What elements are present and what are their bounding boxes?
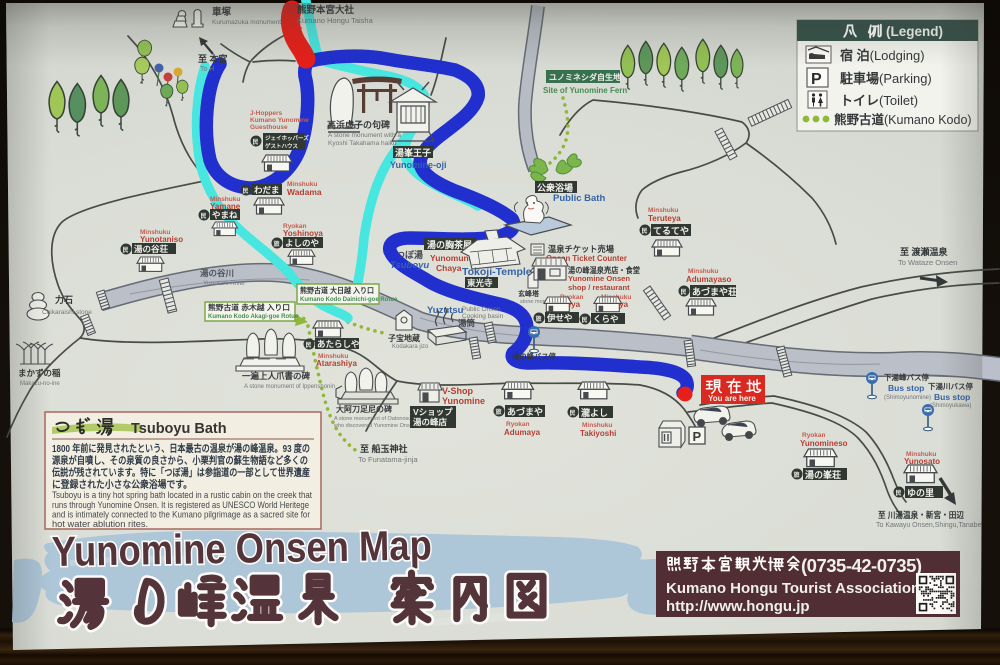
svg-text:旅: 旅 [535, 315, 542, 323]
svg-text:Yoshinoya: Yoshinoya [283, 229, 323, 238]
svg-text:Yunomineso: Yunomineso [800, 439, 848, 448]
svg-text:あたらしや: あたらしや [317, 339, 359, 349]
svg-text:Wadama: Wadama [287, 187, 322, 197]
svg-text:民: 民 [123, 246, 129, 254]
svg-text:力石: 力石 [55, 294, 73, 305]
svg-text:Yunotaniso: Yunotaniso [140, 235, 183, 244]
svg-text:P: P [693, 429, 702, 444]
svg-text:Teruteya: Teruteya [648, 214, 681, 223]
svg-text:民: 民 [243, 187, 249, 195]
svg-text:民: 民 [681, 288, 687, 296]
svg-text:Tsuboyu is a tiny hot spring b: Tsuboyu is a tiny hot spring bath locate… [52, 490, 312, 500]
svg-text:旅: 旅 [273, 240, 280, 248]
svg-text:ゲストハウス: ゲストハウス [265, 142, 299, 150]
svg-text:民: 民 [642, 227, 648, 235]
svg-text:Vショップ: Vショップ [413, 407, 453, 417]
svg-text:湯の峰店: 湯の峰店 [413, 417, 448, 427]
svg-text:伝説が残されています。特に「つぼ湯」は参詣道の一部として世界: 伝説が残されています。特に「つぼ湯」は参詣道の一部として世界遺産 [52, 466, 310, 479]
svg-text:Public Bath: Public Bath [553, 193, 605, 204]
svg-text:民: 民 [570, 409, 576, 417]
svg-text:and is intimately connected to: and is intimately connected to the Kuman… [52, 510, 310, 520]
svg-text:湯の峰バス停: 湯の峰バス停 [512, 351, 556, 361]
svg-text:車塚: 車塚 [212, 6, 232, 18]
svg-text:旅: 旅 [793, 471, 800, 479]
svg-text:あづまや: あづまや [507, 406, 543, 417]
svg-text:who discovered Yunomine Onsen: who discovered Yunomine Onsen [333, 423, 416, 429]
svg-text:Site of Yunomine Fern: Site of Yunomine Fern [543, 86, 627, 95]
svg-text:Ryokan: Ryokan [802, 432, 826, 439]
svg-text:至 本宮: 至 本宮 [198, 53, 228, 64]
svg-text:Kyoshi Takahama haiku: Kyoshi Takahama haiku [328, 140, 397, 147]
svg-text:湯の峯荘: 湯の峯荘 [805, 469, 841, 480]
svg-text:ジェイホッパーズ: ジェイホッパーズ [265, 134, 309, 142]
svg-text:民: 民 [201, 212, 207, 220]
svg-text:熊野古道 大日越 入り口: 熊野古道 大日越 入り口 [300, 285, 374, 295]
svg-text:http://www.hongu.jp: http://www.hongu.jp [666, 598, 810, 615]
svg-text:J-Hoppers: J-Hoppers [250, 110, 283, 117]
svg-text:Kumano Yunomine: Kumano Yunomine [250, 117, 309, 124]
svg-text:Minshuku: Minshuku [688, 268, 718, 275]
svg-text:東光寺: 東光寺 [467, 278, 493, 288]
svg-text:Bus stop: Bus stop [888, 383, 924, 393]
svg-text:湯の谷荘: 湯の谷荘 [134, 244, 169, 254]
svg-text:てるてや: てるてや [653, 226, 689, 236]
svg-text:あづまや荘: あづまや荘 [692, 286, 737, 297]
svg-text:To H: To H [200, 66, 214, 73]
svg-text:Kodakara jizo: Kodakara jizo [392, 344, 429, 350]
svg-text:You are here: You are here [708, 394, 756, 403]
svg-text:To Kawayu Onsen,Shingu,Tanabe: To Kawayu Onsen,Shingu,Tanabe [876, 522, 982, 529]
svg-text:1800 年前に発見されたという、日本最古の温泉が湯の峰温泉: 1800 年前に発見されたという、日本最古の温泉が湯の峰温泉。93 度の [52, 442, 310, 455]
svg-text:ゆの里: ゆの里 [907, 488, 934, 498]
svg-text:宿 泊(Lodging): 宿 泊(Lodging) [840, 48, 925, 63]
svg-text:Makazu-no-ine: Makazu-no-ine [20, 381, 60, 387]
svg-text:Kumano Kodo Dainichi-goe Rotue: Kumano Kodo Dainichi-goe Rotue [300, 297, 398, 303]
svg-text:Takiyoshi: Takiyoshi [580, 429, 616, 438]
svg-text:つぼ湯: つぼ湯 [396, 249, 423, 260]
svg-text:下湯峰バス停: 下湯峰バス停 [884, 372, 929, 382]
svg-text:To Wataze Onsen: To Wataze Onsen [898, 258, 957, 267]
svg-text:Minshuku: Minshuku [648, 207, 678, 214]
svg-text:A stone monument with a: A stone monument with a [328, 132, 401, 139]
svg-text:湯筒: 湯筒 [458, 318, 476, 328]
svg-text:一遍上人爪書の碑: 一遍上人爪書の碑 [242, 371, 311, 381]
svg-text:やまね: やまね [212, 210, 238, 220]
svg-text:駐車場(Parking): 駐車場(Parking) [840, 71, 932, 86]
svg-text:Kurumazuka monument: Kurumazuka monument [212, 19, 281, 26]
svg-text:瀧よし: 瀧よし [581, 407, 608, 418]
svg-text:Ryokan: Ryokan [506, 421, 530, 428]
svg-text:源泉が自噴し、その泉質の良さから、小栗判官の蘇生物語など多く: 源泉が自噴し、その泉質の良さから、小栗判官の蘇生物語など多くの [52, 454, 308, 467]
svg-text:(0735-42-0735): (0735-42-0735) [801, 555, 922, 576]
svg-text:民: 民 [306, 341, 312, 349]
svg-text:Minshuku: Minshuku [582, 422, 612, 429]
svg-text:(Shimoyukawa): (Shimoyukawa) [930, 403, 971, 409]
svg-text:Yunotani River: Yunotani River [203, 280, 246, 287]
svg-text:Tokoji-Temple: Tokoji-Temple [462, 266, 532, 278]
svg-text:Yunomine: Yunomine [442, 396, 485, 406]
svg-text:Yunomine-oji: Yunomine-oji [390, 160, 447, 170]
svg-text:Tsuboyu: Tsuboyu [390, 260, 429, 271]
svg-text:shop / restaurant: shop / restaurant [568, 283, 630, 292]
svg-text:子宝地蔵: 子宝地蔵 [388, 333, 420, 343]
svg-text:玄峰塔: 玄峰塔 [518, 289, 540, 298]
svg-text:Bus stop: Bus stop [934, 392, 970, 402]
svg-text:Kumano Kodo Akagi-goe Rotue: Kumano Kodo Akagi-goe Rotue [208, 314, 299, 320]
svg-text:Adumaya: Adumaya [504, 428, 541, 437]
svg-text:高浜虚子の句碑: 高浜虚子の句碑 [327, 119, 390, 130]
svg-text:(Shimoyunomine): (Shimoyunomine) [884, 395, 931, 401]
svg-text:Atarashiya: Atarashiya [316, 359, 357, 368]
svg-text:熊野古道(Kumano Kodo): 熊野古道(Kumano Kodo) [834, 112, 972, 127]
svg-text:Adumayaso: Adumayaso [686, 275, 731, 284]
svg-text:まかずの稲: まかずの稲 [18, 368, 61, 378]
svg-text:伊せや: 伊せや [546, 313, 573, 323]
svg-text:くらや: くらや [593, 314, 619, 324]
svg-text:トイレ(Toilet): トイレ(Toilet) [840, 93, 918, 108]
svg-text:Public Onsen: Public Onsen [462, 306, 501, 313]
svg-text:熊野古道 赤木越 入り口: 熊野古道 赤木越 入り口 [208, 302, 290, 312]
svg-text:わだま: わだま [254, 185, 279, 195]
svg-text:民: 民 [582, 316, 588, 324]
svg-text:至 船玉神社: 至 船玉神社 [360, 443, 408, 454]
svg-text:ユノミネシダ自生地: ユノミネシダ自生地 [549, 72, 621, 82]
svg-text:公衆浴場: 公衆浴場 [537, 182, 573, 193]
svg-text:Kumano Hongu Taisha: Kumano Hongu Taisha [297, 16, 374, 25]
svg-text:hot water ablution rites.: hot water ablution rites. [52, 519, 148, 529]
svg-text:P: P [811, 71, 822, 88]
svg-text:A stone monument of Oatonosuku: A stone monument of Oatonosukune [334, 416, 423, 422]
svg-text:湯の谷川: 湯の谷川 [200, 268, 234, 278]
svg-text:To Funatama-jinja: To Funatama-jinja [358, 455, 418, 464]
svg-text:A stone monument of Ippenshoni: A stone monument of Ippenshonin [244, 384, 335, 390]
svg-text:至 渡瀬温泉: 至 渡瀬温泉 [900, 246, 949, 257]
svg-text:大阿刀足尼の碑: 大阿刀足尼の碑 [336, 404, 392, 414]
svg-text:温泉チケット売場: 温泉チケット売場 [548, 244, 614, 254]
svg-text:runs through Yunomine Onsen. I: runs through Yunomine Onsen. It is regis… [52, 500, 309, 510]
svg-text:Yunomine Onsen: Yunomine Onsen [568, 274, 630, 283]
svg-text:V-Shop: V-Shop [442, 386, 474, 396]
svg-text:熊野本宮大社: 熊野本宮大社 [297, 4, 355, 16]
svg-text:民: 民 [896, 489, 902, 497]
svg-text:Chikaraishi stone: Chikaraishi stone [42, 309, 92, 316]
svg-text:(Legend): (Legend) [886, 24, 943, 39]
svg-text:Chaya: Chaya [436, 263, 462, 273]
svg-text:Guesthouse: Guesthouse [250, 124, 288, 131]
svg-text:民: 民 [253, 138, 259, 146]
svg-text:Tsuboyu Bath: Tsuboyu Bath [131, 421, 227, 437]
svg-text:下湯川バス停: 下湯川バス停 [928, 381, 973, 391]
svg-text:旅: 旅 [495, 408, 502, 416]
svg-text:湯峯王子: 湯峯王子 [395, 147, 431, 158]
svg-text:よしのや: よしのや [285, 238, 319, 248]
svg-text:至 川湯温泉・新宮・田辺: 至 川湯温泉・新宮・田辺 [878, 510, 964, 520]
svg-text:Kumano Hongu Tourist Associati: Kumano Hongu Tourist Association [666, 580, 920, 597]
